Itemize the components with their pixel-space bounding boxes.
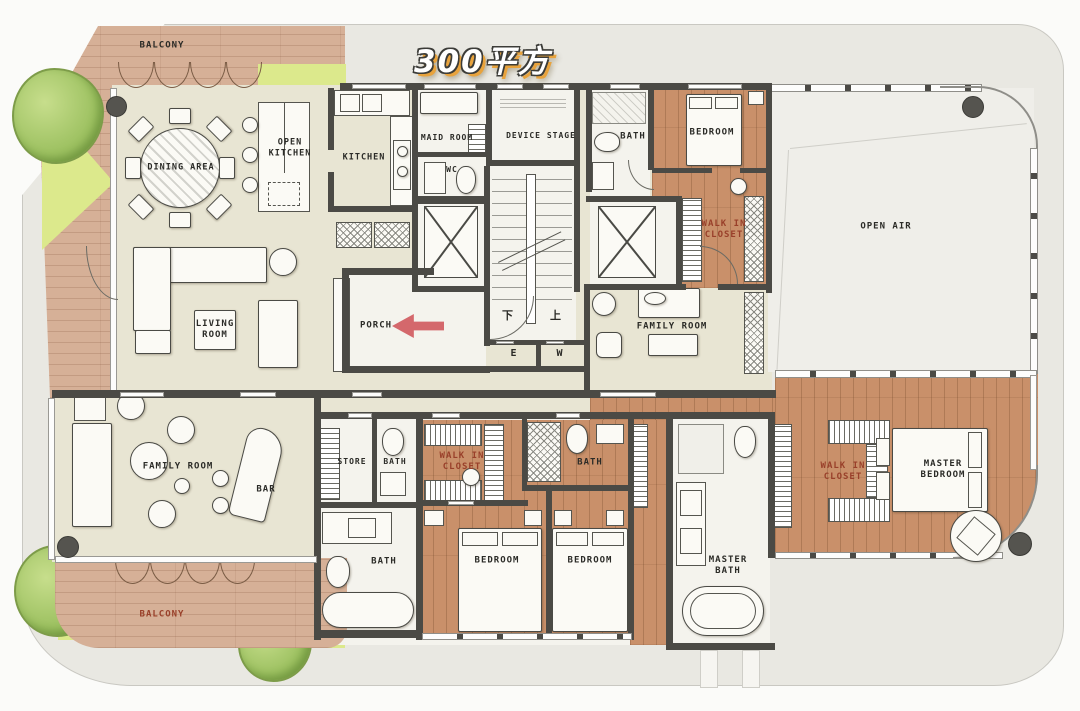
bedroom-top-ac-unit	[748, 91, 764, 105]
fold-arc	[226, 62, 262, 88]
family-right-pouf	[596, 332, 622, 358]
bed-pillow	[689, 97, 712, 109]
label-store: STORE	[337, 457, 366, 467]
label-living: LIVING ROOM	[191, 319, 239, 342]
label-bedroom1: BEDROOM	[475, 555, 520, 566]
island-dashed-unit	[268, 182, 300, 206]
bedroom2-closet	[632, 424, 648, 508]
door-gap	[546, 341, 564, 344]
family-left-round-chair	[167, 416, 195, 444]
family-right-decor	[644, 292, 666, 305]
fold-arc	[154, 62, 190, 88]
label-wic-top: WALK IN CLOSET	[695, 219, 753, 242]
label-wic-mid: WALK IN CLOSET	[434, 451, 490, 474]
window-family-bottom	[55, 556, 317, 563]
wall	[740, 168, 768, 173]
open-air-window-right	[1030, 148, 1038, 374]
window	[688, 84, 742, 89]
wall	[648, 88, 654, 170]
label-family-right: FAMILY ROOM	[637, 321, 708, 332]
kitchen-cabinet	[374, 222, 410, 248]
family-right-shelf	[744, 292, 764, 374]
wall	[676, 202, 682, 288]
bedroom1-nightstand	[424, 510, 444, 526]
master-bath-shower	[678, 424, 724, 474]
device-vents	[500, 96, 566, 108]
wing-window-right	[1030, 375, 1037, 470]
label-family-left: FAMILY ROOM	[143, 461, 214, 472]
label-stair-up: 上	[550, 309, 562, 323]
door-gap	[348, 413, 372, 418]
window	[610, 84, 640, 89]
wall	[314, 630, 422, 638]
wall	[628, 419, 634, 640]
kitchen-sink	[362, 94, 382, 112]
label-maid: MAID ROOM	[421, 133, 473, 143]
dining-chair	[125, 157, 141, 179]
wall	[412, 88, 418, 200]
bar-stool	[242, 117, 258, 133]
dining-chair	[169, 108, 191, 124]
dining-chair	[219, 157, 235, 179]
kitchen-cabinet	[336, 222, 372, 248]
bath-mid-shower	[527, 422, 561, 482]
label-kitchen: KITCHEN	[343, 153, 386, 164]
bath-lower-basin	[348, 518, 376, 538]
bed-pillow	[556, 532, 588, 546]
master-bed-bench	[876, 438, 890, 466]
door-gap	[240, 392, 276, 397]
elevator-right-cab	[598, 206, 656, 278]
column	[1008, 532, 1032, 556]
family-left-small-table	[174, 478, 190, 494]
family-left-side-table	[74, 397, 106, 421]
label-bath-lower: BATH	[371, 556, 397, 567]
label-porch: PORCH	[360, 320, 392, 331]
master-bath-tub	[682, 586, 764, 636]
label-bath-top: BATH	[620, 131, 646, 142]
wall	[586, 196, 682, 202]
family-right-table	[648, 334, 698, 356]
window	[424, 84, 476, 89]
bath-store-sink	[380, 472, 406, 496]
bath-top-toilet	[594, 132, 620, 152]
wc-sink	[424, 162, 446, 194]
label-elevator-w: W	[556, 348, 563, 361]
wall	[328, 88, 334, 150]
label-balcony-bottom: BALCONY	[140, 609, 185, 620]
master-bath-basin	[680, 528, 702, 554]
label-dining: DINING AREA	[147, 163, 214, 174]
bay-outline	[700, 650, 718, 688]
door-gap	[448, 501, 474, 505]
family-left-sofa	[72, 423, 112, 527]
wall	[412, 196, 490, 202]
wall	[766, 83, 772, 293]
plan-title: 300平方	[414, 36, 551, 81]
fold-arc	[115, 560, 150, 584]
fold-arc	[118, 62, 154, 88]
bath-store-toilet	[382, 428, 404, 456]
wall	[314, 502, 421, 508]
column	[57, 536, 79, 558]
wall	[522, 485, 632, 491]
label-wic-master: WALK IN CLOSET	[814, 461, 872, 484]
wic-master-closet-left	[772, 424, 792, 528]
label-stair-down: 下	[502, 309, 514, 323]
wall	[574, 88, 580, 166]
window-left-dining	[110, 88, 117, 394]
window	[543, 84, 569, 89]
bay-outline	[742, 650, 760, 688]
wall	[412, 196, 418, 292]
wall	[586, 88, 592, 192]
bedroom-top-stool	[730, 178, 747, 195]
column	[106, 96, 127, 117]
bar-stool	[212, 470, 229, 487]
tub-inner	[690, 593, 756, 629]
kitchen-sink	[340, 94, 360, 112]
wall	[412, 286, 490, 292]
wall	[546, 489, 552, 637]
label-bedroom2: BEDROOM	[568, 555, 613, 566]
wall	[718, 284, 772, 290]
wall	[416, 412, 423, 640]
label-bath-mid: BATH	[577, 457, 603, 468]
bedroom2-nightstand	[606, 510, 624, 526]
dining-chair	[169, 212, 191, 228]
wall	[652, 284, 686, 290]
wall	[666, 412, 673, 650]
fold-arc	[220, 560, 255, 584]
wall	[342, 268, 434, 275]
bed-pillow	[715, 97, 738, 109]
wall	[484, 366, 584, 372]
master-bath-toilet	[734, 426, 756, 458]
fold-arc	[150, 560, 185, 584]
wall	[768, 412, 775, 558]
door-gap	[496, 341, 514, 344]
label-elevator-e: E	[510, 348, 517, 361]
label-open-air: OPEN AIR	[860, 221, 911, 232]
wing-window-top	[775, 370, 1037, 378]
window-bedrooms-bottom	[422, 633, 632, 640]
living-sofa-left	[133, 247, 171, 331]
window	[497, 84, 523, 89]
bath-top-sink	[592, 162, 614, 190]
wall	[342, 268, 349, 372]
bed-pillow	[462, 532, 498, 546]
folding-doors-top	[118, 62, 262, 88]
door-gap	[600, 392, 656, 397]
bed-pillow	[592, 532, 624, 546]
label-bath-store: BATH	[383, 457, 406, 467]
family-right-chair	[592, 292, 616, 316]
window	[352, 84, 406, 89]
maid-bed	[420, 92, 478, 114]
window-family-left	[48, 398, 55, 560]
floor-plan-canvas: BALCONY DINING AREA OPEN KITCHEN KITCHEN…	[0, 0, 1080, 711]
wall	[328, 206, 418, 212]
label-wc: WC	[446, 165, 458, 175]
master-bed-bench	[876, 472, 890, 500]
bath-mid-toilet	[566, 424, 588, 454]
wall	[522, 419, 527, 487]
label-master-bedroom: MASTER BEDROOM	[912, 459, 974, 482]
bed-pillow	[502, 532, 538, 546]
bar-stool	[212, 497, 229, 514]
wc-toilet	[456, 166, 476, 194]
door-gap	[352, 392, 382, 397]
wall	[490, 160, 580, 166]
wall	[314, 392, 321, 640]
label-open-kitchen: OPEN KITCHEN	[262, 137, 318, 158]
wall	[574, 166, 580, 292]
wall	[342, 366, 490, 373]
bath-lower-tub	[322, 592, 414, 628]
master-bath-basin	[680, 490, 702, 516]
wall	[584, 284, 590, 396]
fold-arc	[190, 62, 226, 88]
family-left-round-chair	[148, 500, 176, 528]
elevator-x-icon	[425, 207, 477, 277]
living-loveseat	[258, 300, 298, 368]
stove-burner	[397, 166, 408, 177]
living-chair	[269, 248, 297, 276]
fold-arc	[185, 560, 220, 584]
column	[962, 96, 984, 118]
door-gap	[556, 413, 580, 418]
label-balcony-top: BALCONY	[140, 40, 185, 51]
wic-mid-closet-top	[424, 424, 482, 446]
living-ottoman	[135, 330, 171, 354]
wic-master-closet-bottomband	[828, 498, 890, 522]
wall	[372, 419, 377, 505]
bath-lower-toilet	[326, 556, 350, 588]
wall	[666, 643, 775, 650]
bath-top-shower	[592, 92, 646, 124]
bedroom2-nightstand	[554, 510, 572, 526]
label-master-bath: MASTER BATH	[701, 555, 755, 578]
label-bedroom-top: BEDROOM	[690, 127, 735, 138]
door-gap	[432, 413, 460, 418]
label-device: DEVICE STAGE	[506, 131, 576, 141]
stove-burner	[397, 146, 408, 157]
wall	[666, 412, 774, 419]
door-gap	[120, 392, 164, 397]
wall	[415, 152, 489, 157]
bar-stool	[242, 177, 258, 193]
folding-doors-bottom	[115, 560, 255, 584]
elevator-x-icon	[599, 207, 655, 277]
bar-stool	[242, 147, 258, 163]
bedroom1-nightstand	[524, 510, 542, 526]
wall	[652, 168, 712, 173]
label-bar: BAR	[256, 484, 275, 495]
bath-mid-sink	[596, 424, 624, 444]
